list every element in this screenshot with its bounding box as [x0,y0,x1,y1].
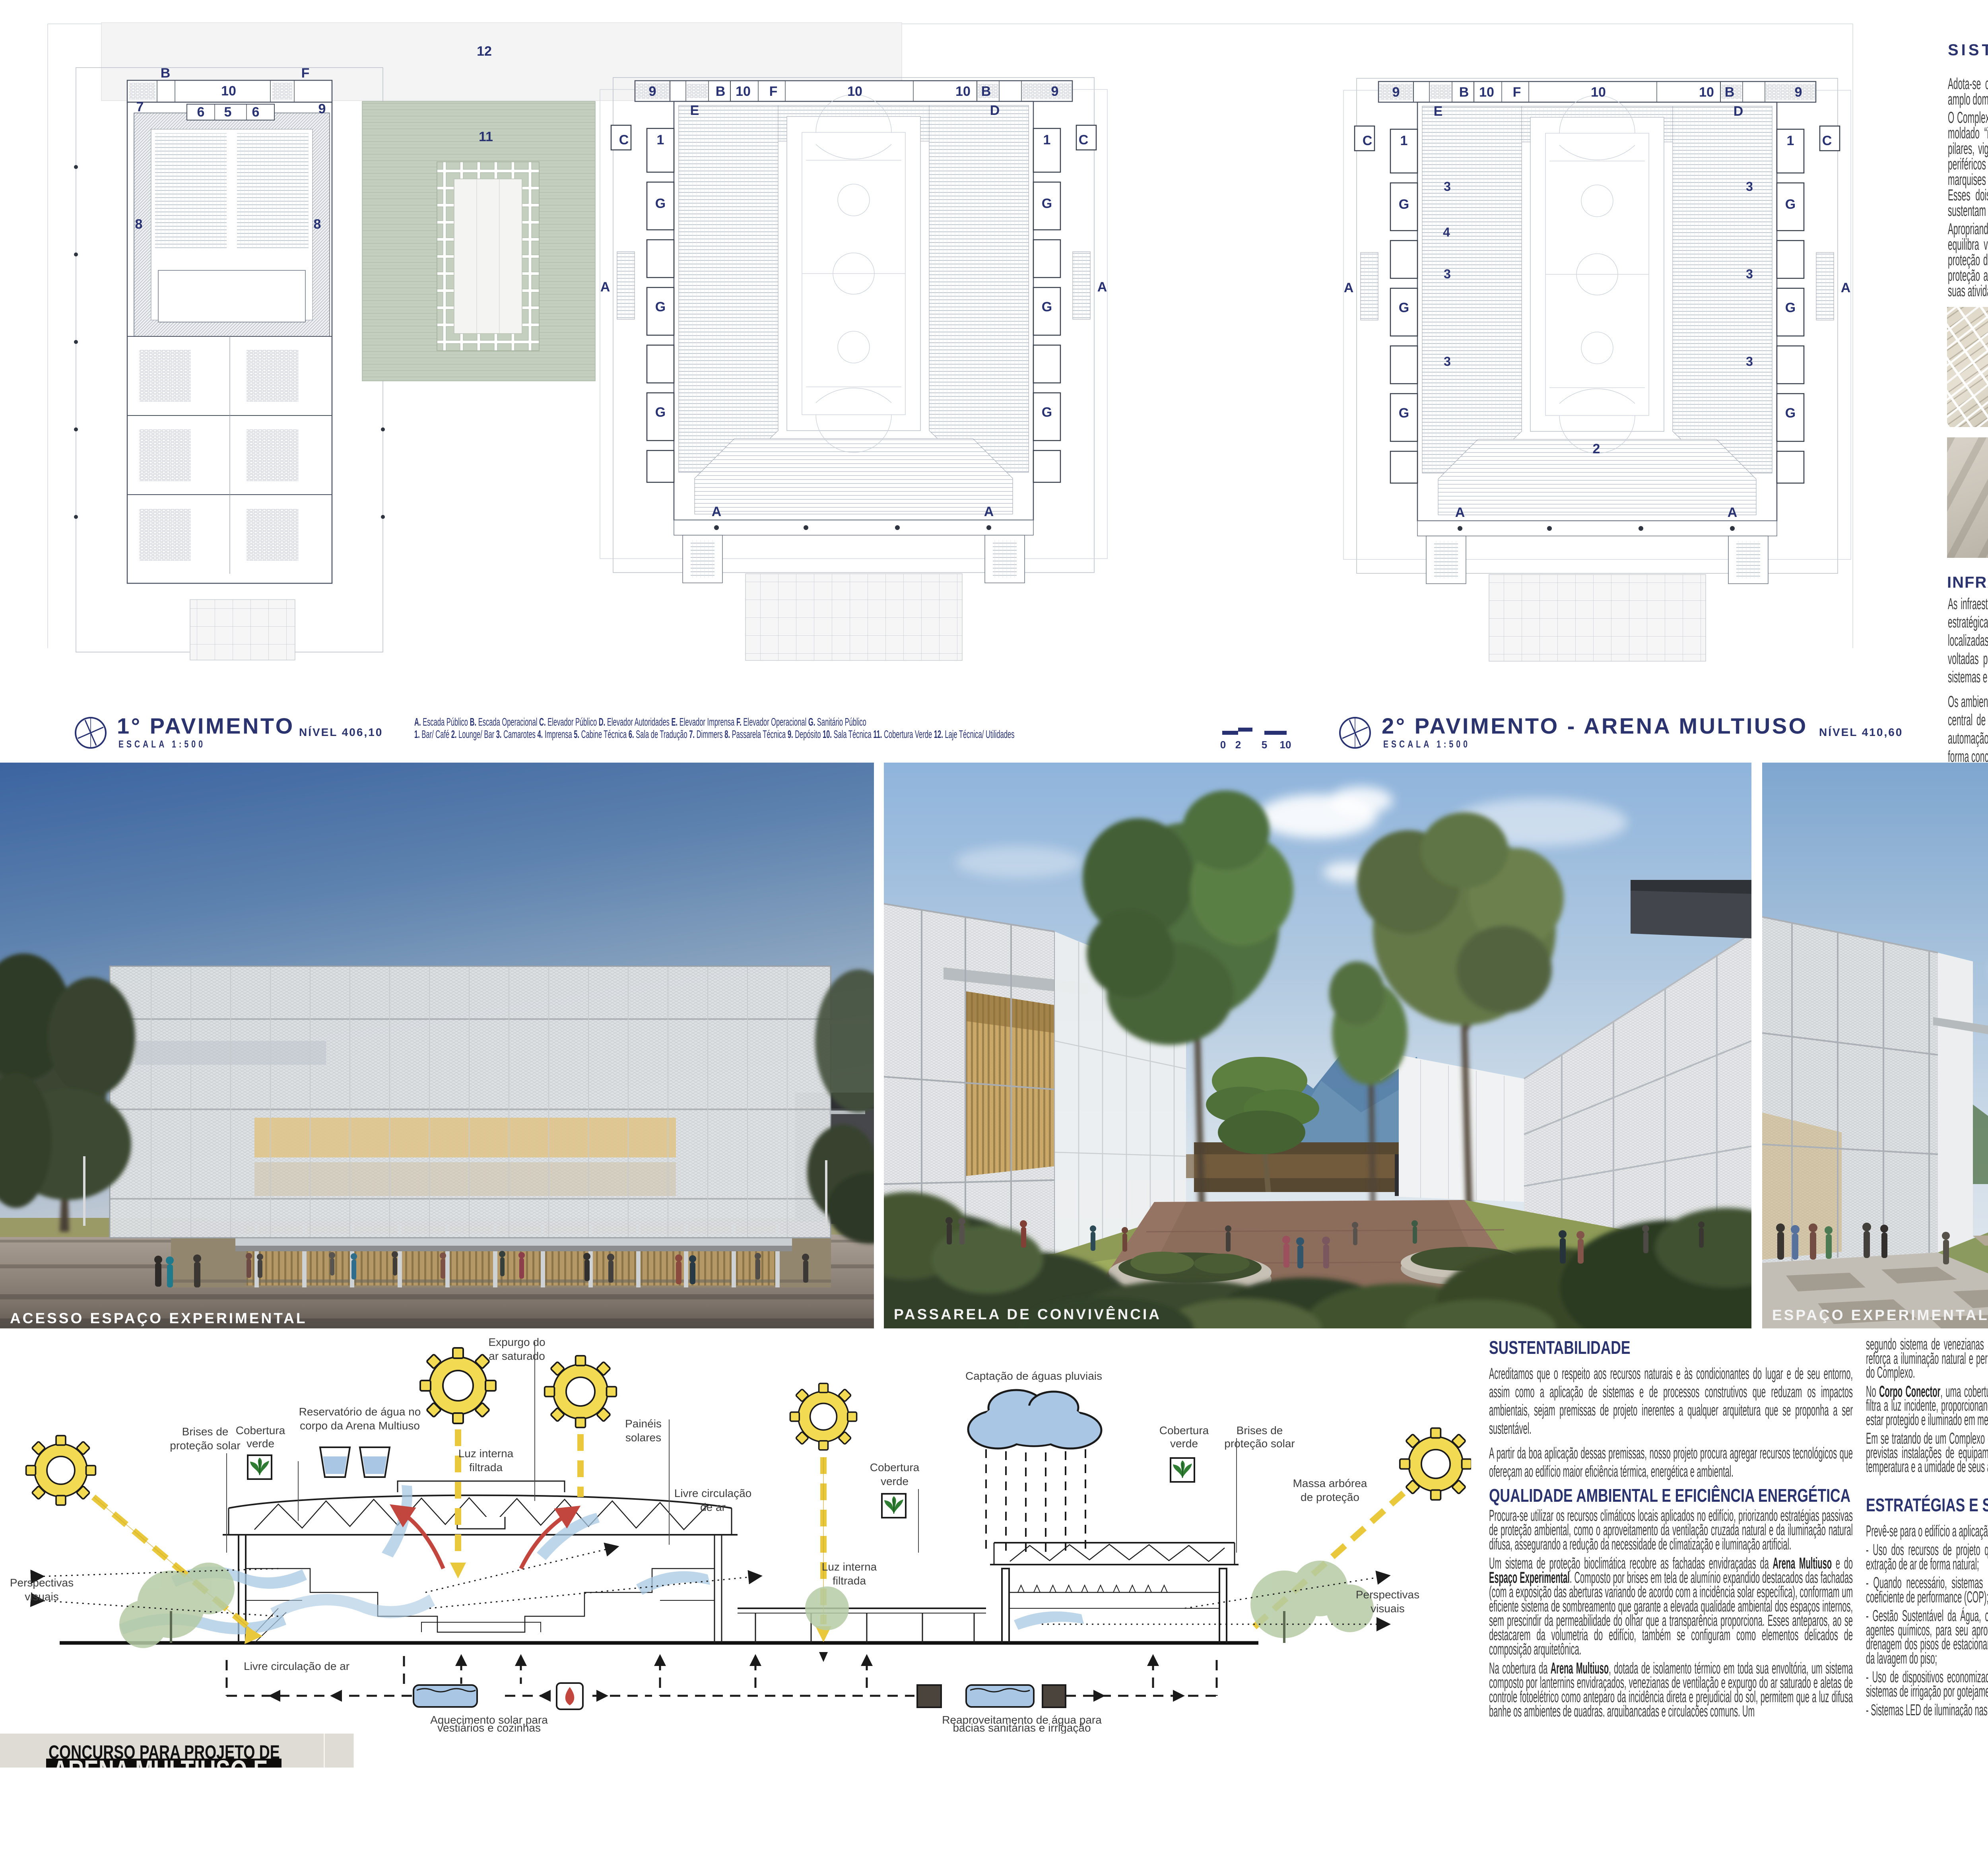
svg-text:Brises de: Brises de [1237,1424,1283,1437]
svg-text:visuais: visuais [25,1590,59,1603]
svg-text:Livre circulação de ar: Livre circulação de ar [244,1660,349,1672]
svg-text:Cobertura: Cobertura [1159,1424,1209,1437]
svg-text:Captação de águas pluviais: Captação de águas pluviais [965,1370,1102,1382]
svg-text:11: 11 [479,129,493,144]
svg-text:corpo da Arena Multiuso: corpo da Arena Multiuso [300,1419,420,1432]
svg-text:filtrada: filtrada [833,1575,866,1587]
svg-text:verde: verde [247,1437,274,1450]
svg-text:2: 2 [1235,739,1241,751]
svg-text:10: 10 [1280,739,1291,751]
svg-text:5: 5 [1262,739,1267,751]
svg-text:filtrada: filtrada [469,1461,503,1474]
svg-text:ACESSO ESPAÇO EXPERIMENTAL: ACESSO ESPAÇO EXPERIMENTAL [10,1310,307,1326]
svg-text:bacias sanitárias e irrigação: bacias sanitárias e irrigação [953,1722,1091,1734]
svg-text:7: 7 [136,99,144,115]
svg-text:Reservatório de água no: Reservatório de água no [299,1406,421,1418]
svg-text:verde: verde [1170,1437,1198,1450]
svg-text:Expurgo do: Expurgo do [488,1336,545,1348]
svg-text:verde: verde [881,1475,909,1487]
svg-text:proteção solar: proteção solar [1224,1437,1295,1450]
svg-text:6: 6 [197,105,205,120]
svg-text:Massa arbórea: Massa arbórea [1293,1477,1367,1489]
svg-text:visuais: visuais [1371,1602,1405,1615]
svg-text:ESPAÇO EXPERIMENTAL E ARENA MU: ESPAÇO EXPERIMENTAL E ARENA MULTIUSO [1772,1307,1988,1323]
svg-text:vestiários e cozinhas: vestiários e cozinhas [437,1722,541,1734]
svg-text:B: B [161,66,171,81]
svg-text:3: 3 [1746,354,1753,369]
svg-text:solares: solares [625,1431,661,1444]
svg-text:3: 3 [1444,179,1451,194]
svg-text:PASSARELA DE CONVIVÊNCIA: PASSARELA DE CONVIVÊNCIA [894,1306,1161,1322]
svg-text:Cobertura: Cobertura [236,1424,285,1437]
svg-text:de proteção: de proteção [1301,1491,1359,1503]
svg-text:3: 3 [1746,267,1753,281]
svg-text:Brises de: Brises de [182,1425,229,1438]
svg-text:RESENDE: RESENDE [1935,1834,1985,1844]
svg-text:6: 6 [252,105,260,120]
svg-text:Painéis: Painéis [625,1417,662,1430]
svg-text:Perspectivas: Perspectivas [1356,1588,1419,1601]
svg-text:3: 3 [1444,354,1451,369]
svg-text:Livre circulação: Livre circulação [674,1487,752,1499]
svg-text:F: F [301,66,310,81]
svg-text:de ar: de ar [700,1501,726,1513]
svg-text:8: 8 [314,217,321,232]
svg-text:12: 12 [477,44,492,59]
svg-text:proteção solar: proteção solar [170,1439,240,1452]
svg-text:9: 9 [318,101,326,116]
svg-text:3: 3 [1444,267,1451,281]
svg-text:3: 3 [1746,179,1753,194]
svg-text:Luz interna: Luz interna [458,1447,514,1460]
svg-text:Luz interna: Luz interna [822,1561,877,1573]
svg-text:5: 5 [224,105,232,120]
svg-text:8: 8 [135,217,143,232]
svg-text:ar saturado: ar saturado [489,1350,545,1362]
svg-text:0: 0 [1221,739,1226,751]
svg-text:4: 4 [1443,225,1450,239]
svg-text:Cobertura: Cobertura [870,1461,920,1474]
svg-text:2: 2 [1593,441,1600,456]
svg-text:Perspectivas: Perspectivas [10,1577,74,1589]
svg-text:10: 10 [221,83,236,99]
